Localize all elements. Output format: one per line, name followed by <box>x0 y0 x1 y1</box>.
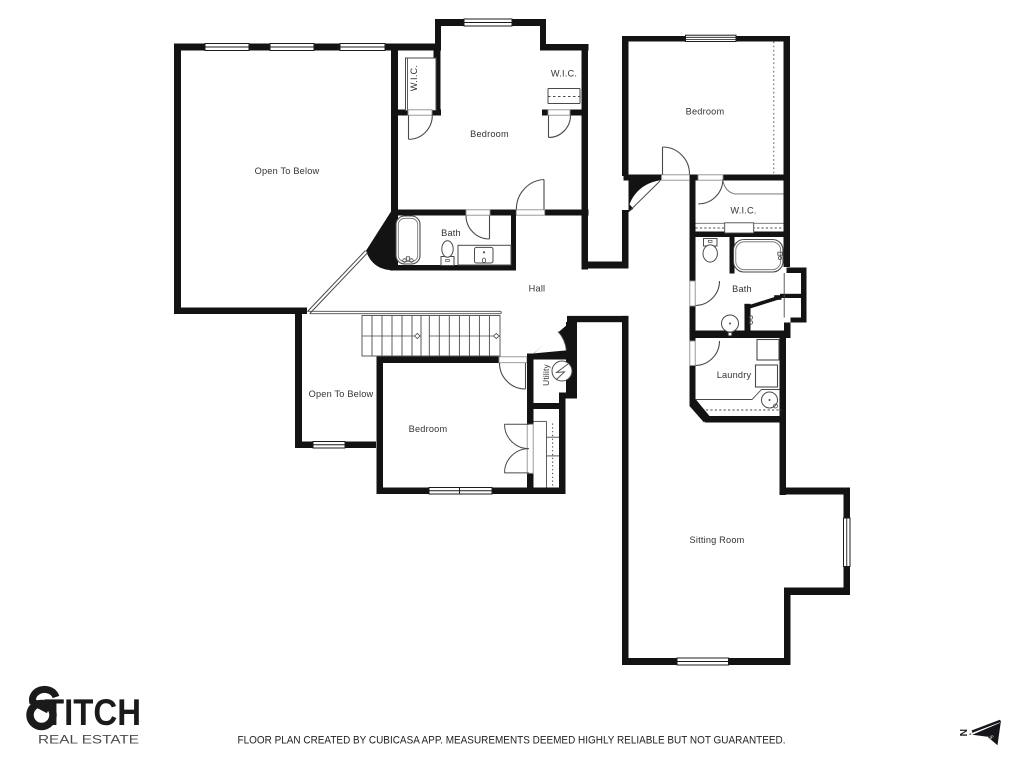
svg-text:Utility: Utility <box>541 364 551 386</box>
svg-text:FLOOR PLAN CREATED BY CUBICASA: FLOOR PLAN CREATED BY CUBICASA APP. MEAS… <box>238 735 786 747</box>
svg-text:Hall: Hall <box>529 284 546 294</box>
svg-text:Sitting Room: Sitting Room <box>690 535 745 545</box>
svg-text:Bedroom: Bedroom <box>409 424 448 434</box>
svg-text:TITCH: TITCH <box>44 692 141 733</box>
svg-text:W.I.C.: W.I.C. <box>551 69 577 79</box>
svg-text:Bath: Bath <box>441 228 461 238</box>
svg-text:Bath: Bath <box>732 284 752 294</box>
svg-text:Open To Below: Open To Below <box>255 166 320 176</box>
svg-text:N: N <box>957 729 969 737</box>
svg-text:REAL ESTATE: REAL ESTATE <box>38 733 139 747</box>
svg-text:W.I.C.: W.I.C. <box>409 65 419 91</box>
svg-text:Bedroom: Bedroom <box>686 107 725 117</box>
svg-text:W.I.C.: W.I.C. <box>730 206 756 216</box>
svg-text:Open To Below: Open To Below <box>309 389 374 399</box>
svg-text:Bedroom: Bedroom <box>470 129 509 139</box>
svg-text:Laundry: Laundry <box>717 370 752 380</box>
